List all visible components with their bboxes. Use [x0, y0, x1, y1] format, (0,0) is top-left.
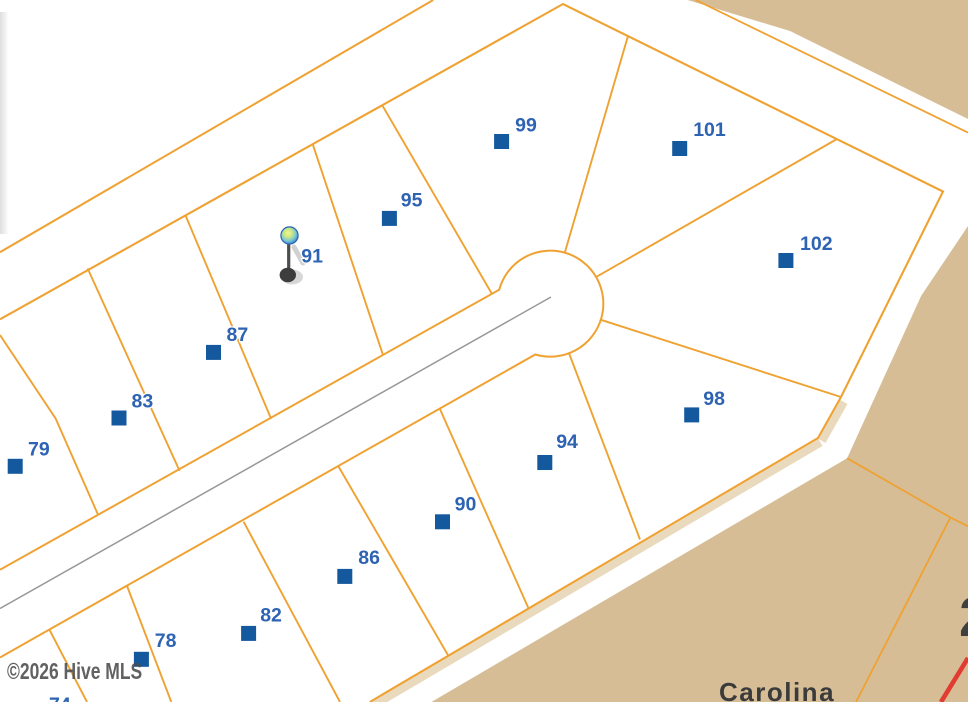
svg-text:98: 98 — [703, 388, 725, 410]
svg-text:102: 102 — [800, 233, 833, 255]
svg-text:2: 2 — [959, 585, 968, 648]
svg-text:83: 83 — [132, 391, 154, 413]
svg-text:79: 79 — [28, 439, 50, 461]
svg-text:90: 90 — [455, 493, 477, 515]
svg-text:87: 87 — [227, 324, 249, 346]
svg-text:Carolina: Carolina — [719, 677, 835, 702]
svg-text:101: 101 — [693, 119, 726, 141]
svg-text:86: 86 — [358, 547, 380, 569]
svg-text:94: 94 — [556, 431, 578, 453]
svg-text:99: 99 — [515, 114, 537, 136]
svg-text:78: 78 — [155, 630, 177, 652]
svg-text:95: 95 — [401, 190, 423, 212]
svg-text:©2026 Hive MLS: ©2026 Hive MLS — [7, 660, 142, 685]
svg-text:82: 82 — [260, 604, 282, 626]
svg-text:91: 91 — [301, 246, 323, 268]
svg-text:74: 74 — [49, 694, 71, 702]
